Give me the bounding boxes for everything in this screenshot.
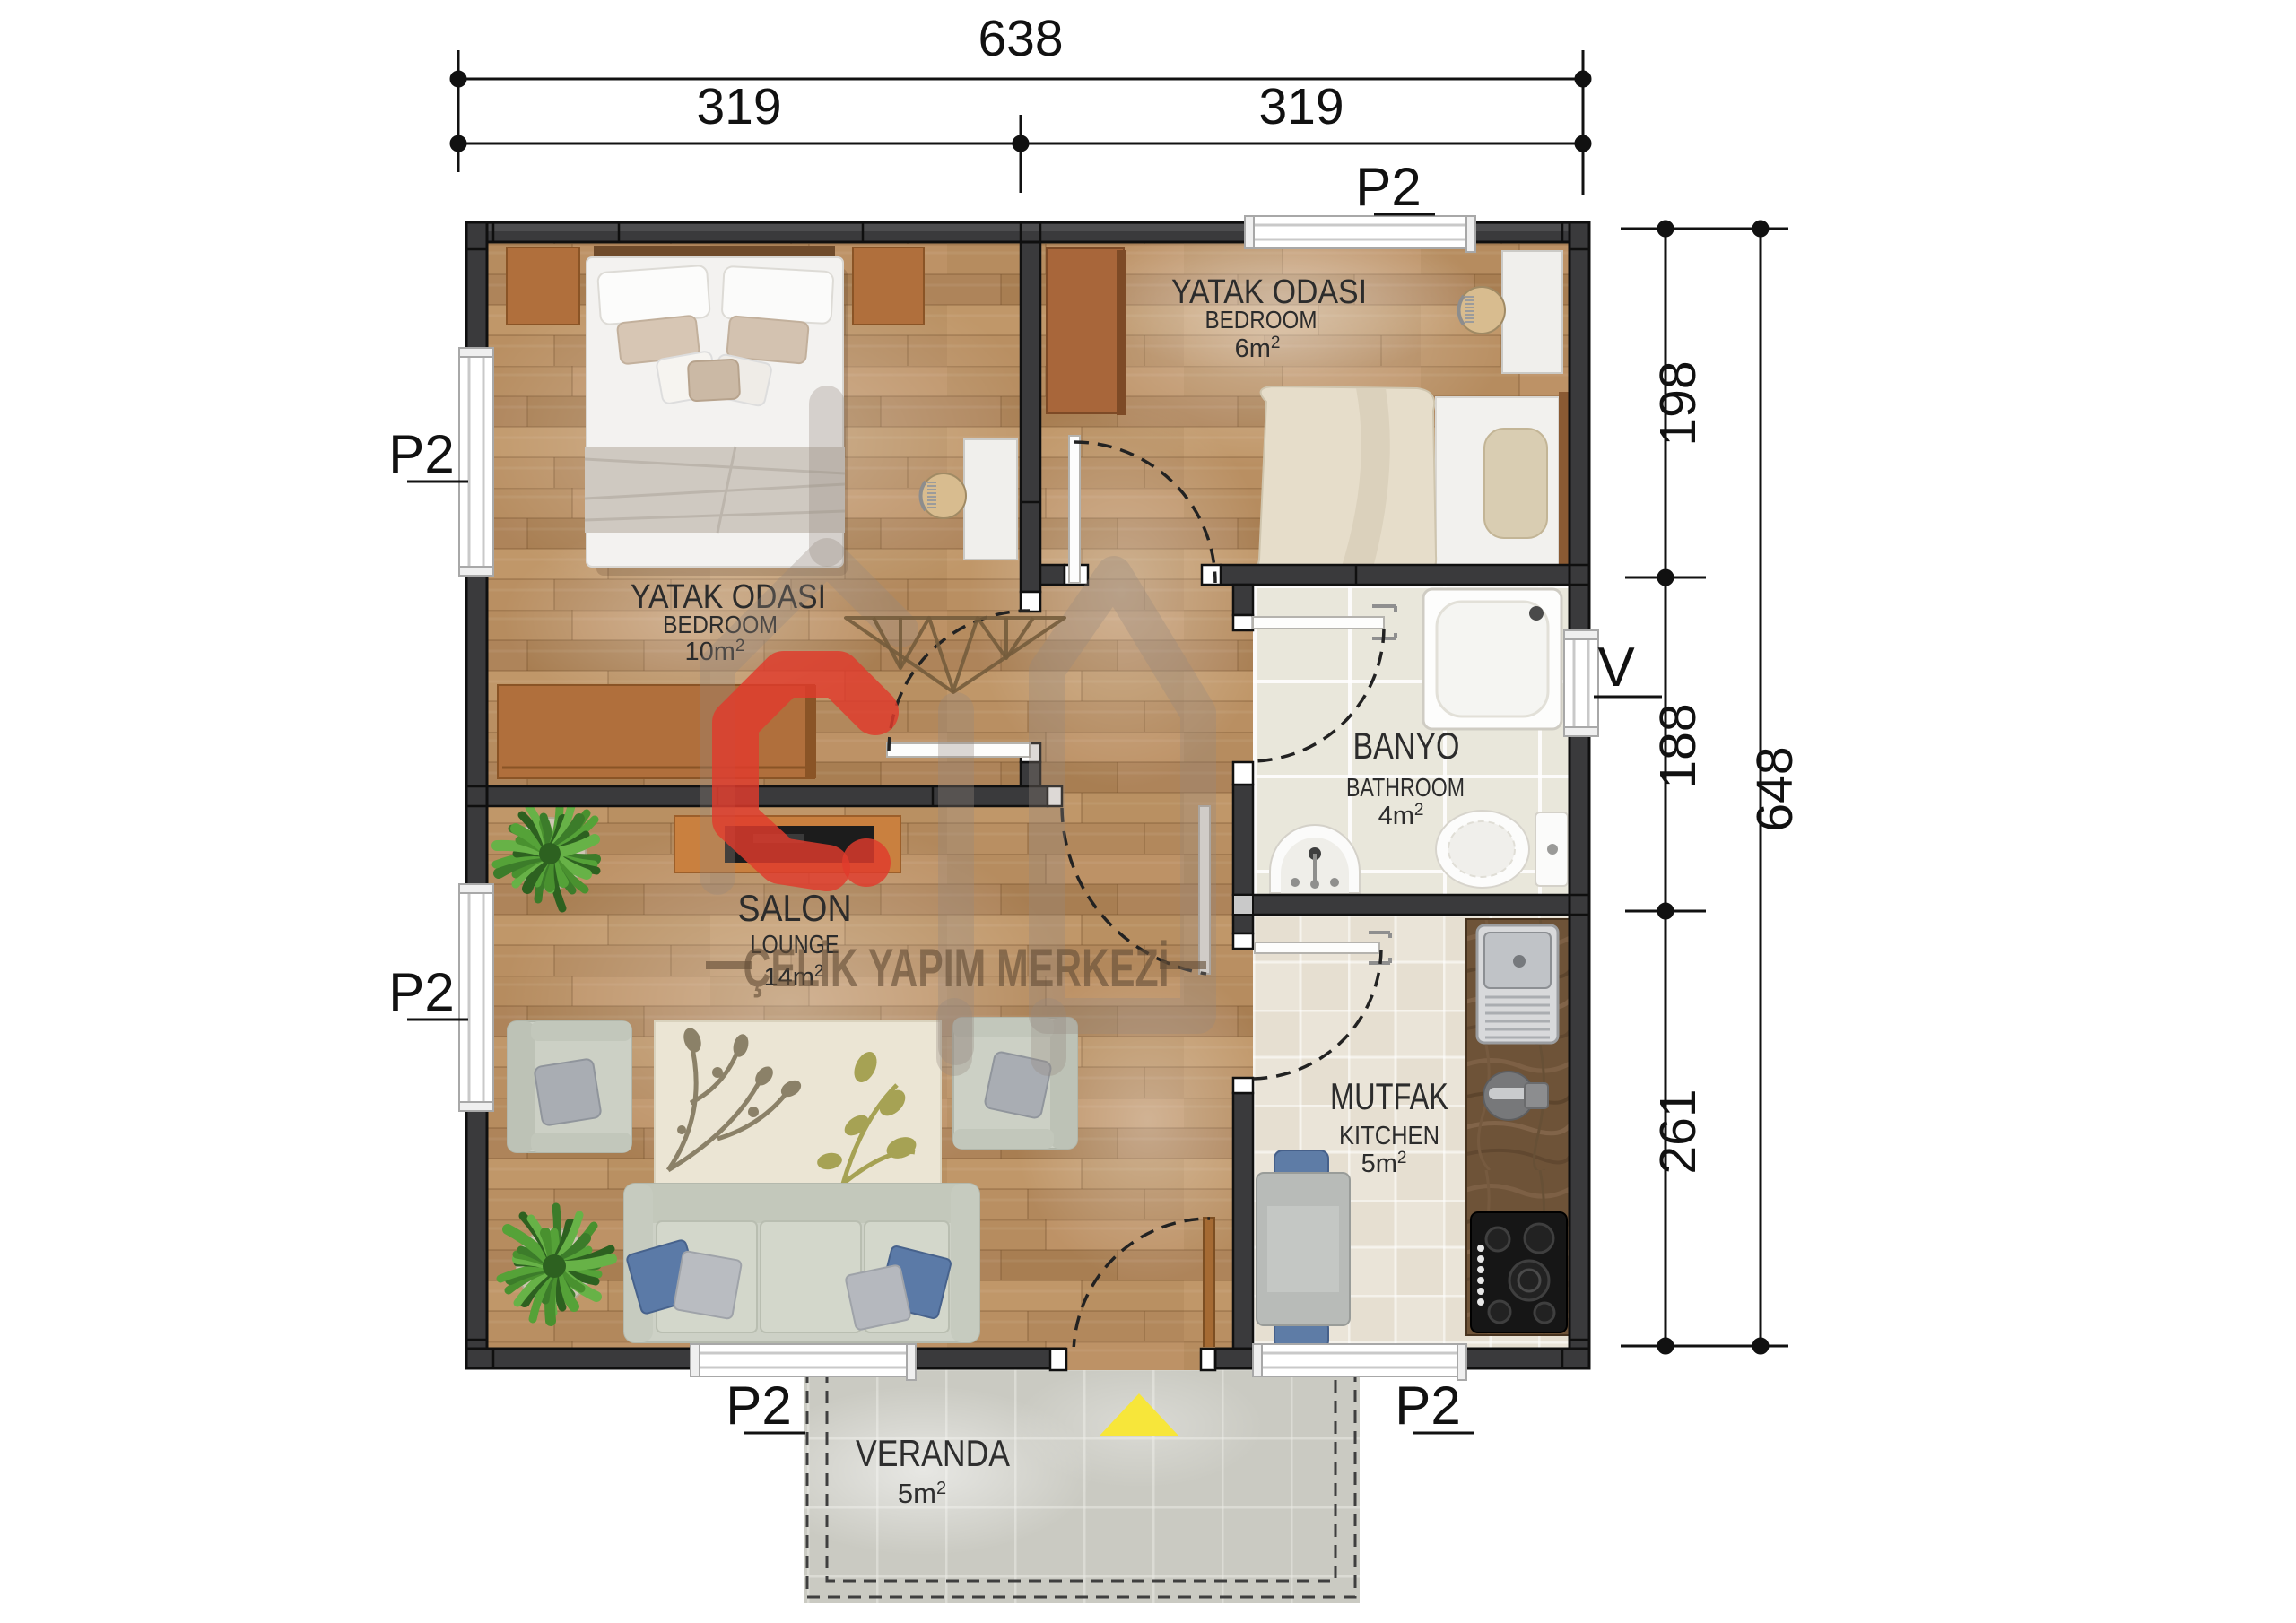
svg-text:P2: P2 bbox=[388, 962, 454, 1022]
svg-text:BEDROOM: BEDROOM bbox=[1205, 306, 1318, 334]
svg-text:ÇELİK YAPIM MERKEZİ: ÇELİK YAPIM MERKEZİ bbox=[744, 938, 1170, 998]
svg-text:188: 188 bbox=[1649, 703, 1707, 788]
svg-text:VERANDA: VERANDA bbox=[856, 1432, 1010, 1474]
svg-text:V: V bbox=[1597, 637, 1635, 699]
svg-text:198: 198 bbox=[1649, 360, 1707, 446]
svg-text:319: 319 bbox=[1258, 78, 1344, 135]
svg-text:648: 648 bbox=[1746, 746, 1804, 831]
svg-text:P2: P2 bbox=[1355, 157, 1421, 217]
svg-text:P2: P2 bbox=[1395, 1376, 1460, 1436]
svg-text:638: 638 bbox=[978, 10, 1063, 67]
svg-text:KITCHEN: KITCHEN bbox=[1339, 1122, 1439, 1150]
svg-text:319: 319 bbox=[696, 78, 781, 135]
svg-text:261: 261 bbox=[1649, 1089, 1707, 1174]
svg-text:BATHROOM: BATHROOM bbox=[1346, 774, 1465, 803]
svg-text:P2: P2 bbox=[726, 1376, 791, 1436]
svg-text:SALON: SALON bbox=[738, 887, 852, 929]
svg-text:P2: P2 bbox=[388, 424, 454, 484]
svg-text:BANYO: BANYO bbox=[1353, 725, 1460, 767]
svg-text:MUTFAK: MUTFAK bbox=[1330, 1075, 1448, 1117]
